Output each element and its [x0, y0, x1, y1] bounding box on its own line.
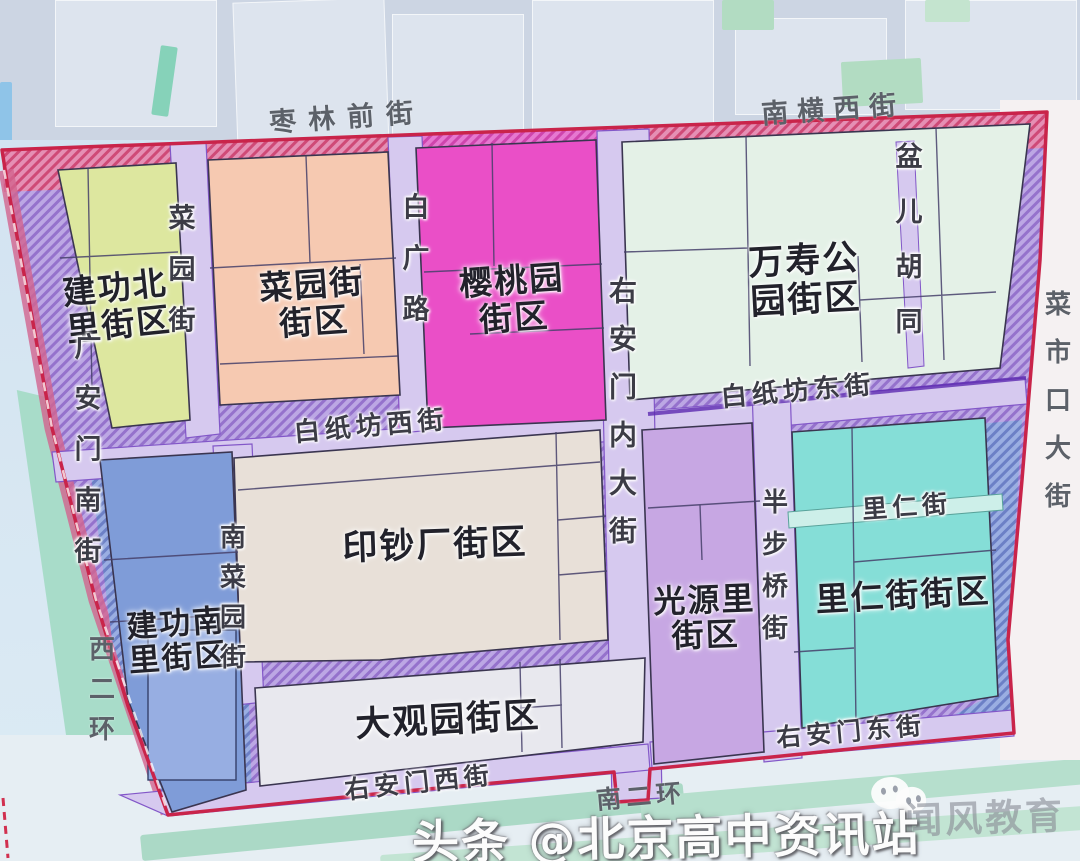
map-photo: 建功北里街区 菜园街街区 樱桃园街区 万寿公园街区 印钞厂街区 建功南里街区 大… [0, 0, 1080, 861]
district-label-lirenjiejiequ: 里仁街街区 [815, 572, 992, 618]
red-dash-fragment [3, 798, 8, 858]
street-label-youanmenneidajie: 右安门内大街 [601, 276, 641, 564]
street-label-caishikoudajie: 菜市口大街 [1038, 290, 1075, 530]
street-label-nancaiyuanjie: 南菜园街 [213, 523, 250, 683]
street-label-xierhuan: 西二环 [82, 635, 119, 755]
district-label-wanshougongyuan: 万寿公园街区 [748, 239, 863, 323]
street-label-lirenjie: 里仁街 [861, 484, 953, 526]
district-label-yingtaoyuan: 樱桃园街区 [458, 258, 568, 339]
street-label-baiguanglu: 白广路 [394, 193, 433, 346]
district-label-caiyuanjie: 菜园街街区 [258, 262, 368, 343]
district-label-yinchaochang: 印钞厂街区 [342, 524, 528, 567]
street-label-banbuqiaojie: 半步桥街 [755, 488, 792, 656]
publisher-watermark: 头条 @北京高中资讯站 [411, 792, 1077, 861]
street-label-guanganmennanjie: 广安门南街 [66, 333, 105, 588]
street-label-penerhutong: 盆儿胡同 [887, 142, 926, 362]
street-label-caiyuanjie: 菜园街 [160, 204, 199, 357]
district-label-guangyuanli: 光源里街区 [653, 581, 757, 655]
